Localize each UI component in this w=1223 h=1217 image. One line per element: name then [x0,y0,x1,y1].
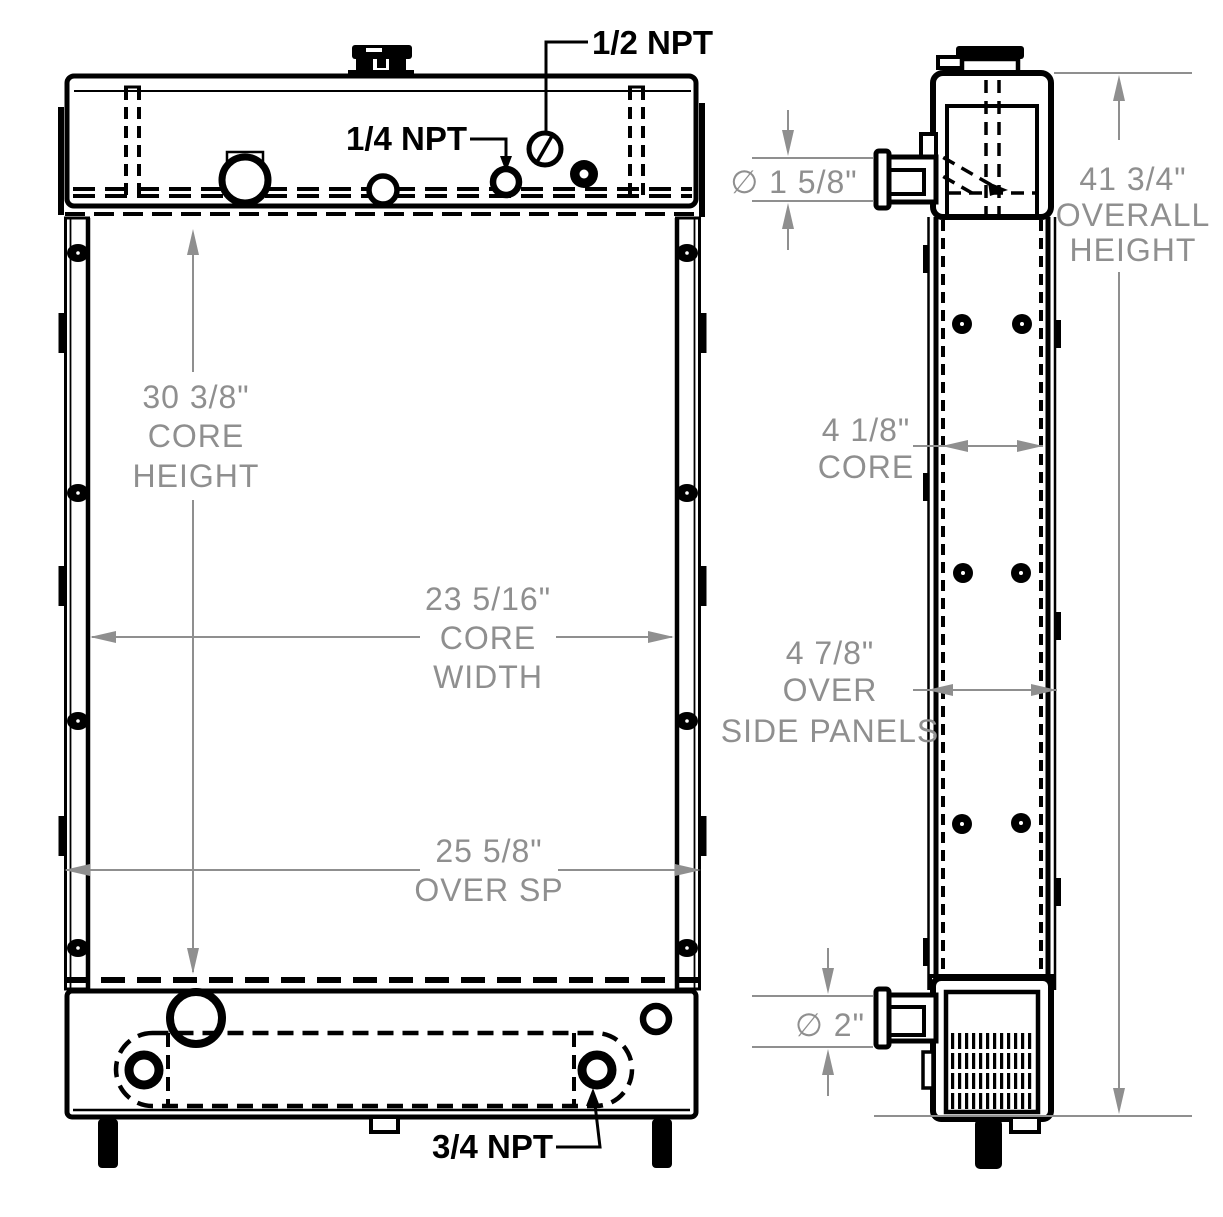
svg-text:OVER SP: OVER SP [414,872,563,908]
dimension-core-depth: 4 1/8" CORE [818,412,1043,485]
svg-text:CORE: CORE [440,620,536,656]
svg-text:41 3/4": 41 3/4" [1079,161,1186,197]
svg-text:OVER: OVER [783,672,878,708]
quarter-npt-label: 1/4 NPT [346,120,467,157]
svg-text:OVERALL: OVERALL [1056,197,1211,233]
front-bottom-tank [67,991,696,1168]
side-panel-bolts [67,244,698,957]
dimension-outlet-diameter: ∅ 2" [752,948,873,1096]
core-rivets [952,314,1032,834]
bottom-tank-hatch [949,1032,1035,1112]
front-core [59,218,707,990]
top-tank-center-port [369,176,397,204]
bottom-left-port [129,1055,159,1085]
side-bottom-tank [876,976,1052,1169]
svg-text:HEIGHT: HEIGHT [133,458,260,494]
svg-text:25 5/8": 25 5/8" [435,833,542,869]
bottom-tank-large-port [170,992,222,1044]
tank-right-edge-plate [699,103,705,217]
dimension-over-sp: 25 5/8" OVER SP [64,833,701,908]
dimension-inlet-diameter: ∅ 1 5/8" [730,110,873,250]
side-top-tank [876,73,1051,217]
three-quarter-npt-port [582,1055,612,1085]
svg-text:23 5/16": 23 5/16" [425,581,551,617]
svg-text:CORE: CORE [818,449,914,485]
drawing-canvas: 1/2 NPT 1/4 NPT 3/4 NPT 30 3/8" CORE HEI… [0,0,1223,1217]
grommet-port [570,160,598,188]
svg-text:WIDTH: WIDTH [433,659,543,695]
dimension-over-side-panels: 4 7/8" OVER SIDE PANELS [721,635,1057,749]
mounting-foot-left [98,1119,118,1168]
mounting-foot-right [652,1119,672,1168]
dimension-core-width: 23 5/16" CORE WIDTH [90,581,674,695]
svg-text:4 7/8": 4 7/8" [786,635,875,671]
side-filler-cap [938,46,1024,74]
side-view: ∅ 1 5/8" 41 3/4" OVERALL HEIGHT 4 1/8" C… [721,46,1211,1169]
filler-cap [348,45,414,78]
tank-left-edge-plate [58,107,64,215]
svg-text:HEIGHT: HEIGHT [1070,232,1197,268]
mounting-foot-side [975,1119,1002,1169]
radiator-drawing: 1/2 NPT 1/4 NPT 3/4 NPT 30 3/8" CORE HEI… [0,0,1223,1217]
filler-neck-circle [222,152,268,203]
inlet-pipe [876,134,936,208]
quarter-npt-port [493,169,519,195]
front-view: 1/2 NPT 1/4 NPT 3/4 NPT 30 3/8" CORE HEI… [58,24,713,1168]
half-npt-label: 1/2 NPT [592,24,713,61]
svg-text:30 3/8": 30 3/8" [142,379,249,415]
svg-text:SIDE PANELS: SIDE PANELS [721,713,939,749]
three-quarter-npt-label: 3/4 NPT [432,1128,553,1165]
drain-tab-side [1011,1117,1039,1132]
drain-tab [371,1117,398,1132]
bottom-right-small-port [643,1006,669,1032]
dimension-core-height: 30 3/8" CORE HEIGHT [133,229,260,974]
side-core [923,217,1061,990]
svg-text:∅ 2": ∅ 2" [795,1007,865,1043]
svg-text:CORE: CORE [148,418,244,454]
svg-text:4 1/8": 4 1/8" [822,412,911,448]
outlet-pipe [876,989,936,1047]
svg-text:∅ 1 5/8": ∅ 1 5/8" [730,164,857,200]
